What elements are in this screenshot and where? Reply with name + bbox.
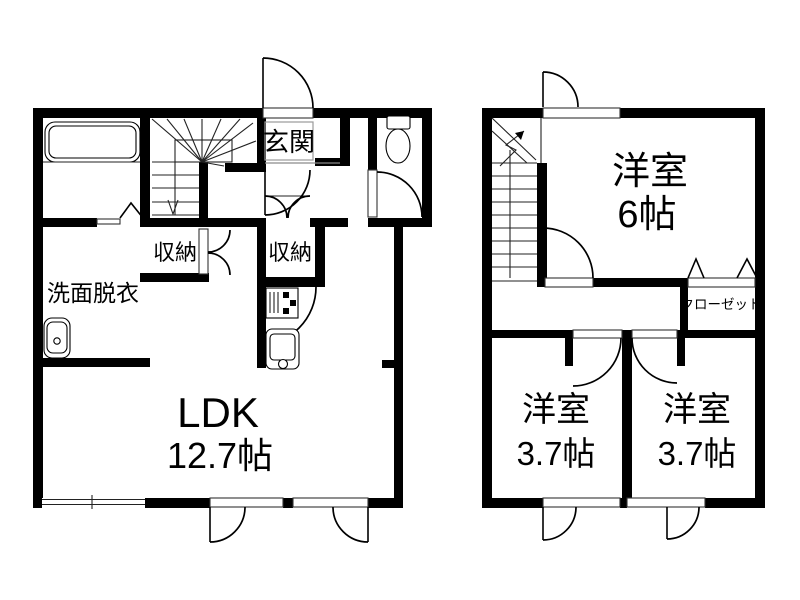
room-size-bedroom-left: 3.7帖 [517,435,596,472]
toilet-icon-bowl [386,129,410,163]
room-label-storage-under-stairs: 収納 [153,240,197,265]
room-size-bedroom-main: 6帖 [617,194,676,236]
floor-plan-image: 玄関 収納 収納 洗面脱衣 LDK 12.7帖 [0,0,800,600]
wash-basin-icon [44,318,70,358]
room-label-storage-hall: 収納 [268,240,312,265]
room-label-entrance: 玄関 [263,127,315,157]
toilet-icon-tank [387,116,410,129]
room-label-bedroom-left: 洋室 [522,391,590,429]
room-size-ldk: 12.7帖 [167,435,273,476]
room-label-washroom: 洗面脱衣 [47,280,139,306]
room-size-bedroom-right: 3.7帖 [658,435,737,472]
room-label-ldk: LDK [177,389,259,436]
room-label-closet: クローゼット [681,297,762,312]
gas-stove-icon [266,288,298,318]
kitchen-sink-icon [266,329,299,369]
room-label-bedroom-right: 洋室 [663,391,731,429]
room-label-bedroom-main: 洋室 [612,151,688,193]
